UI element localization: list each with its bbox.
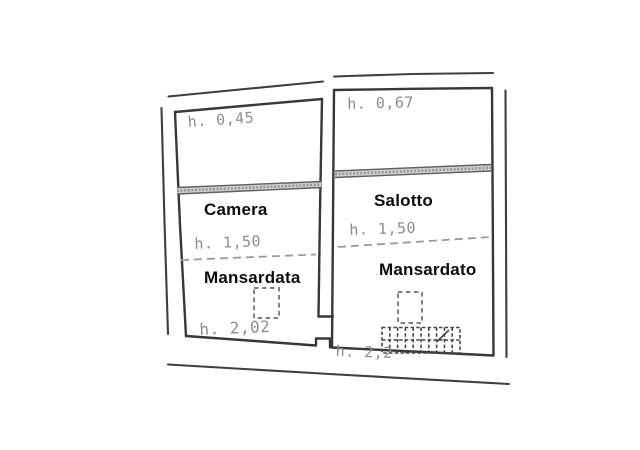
- attic-floor-plan: h. 0,45 Camera h. 1,50 Mansardata h. 2,0…: [0, 0, 640, 450]
- salotto-chimney-square: [398, 292, 422, 323]
- eaves-line-left: [162, 108, 169, 334]
- camera-chimney-square: [254, 288, 279, 318]
- salotto-height-top-label: h. 0,67: [347, 93, 414, 113]
- eaves-line-bottom: [168, 365, 509, 385]
- eaves-line-right: [506, 91, 507, 358]
- wall-left: [332, 90, 334, 348]
- wall-left: [175, 112, 186, 336]
- camera-height-mid-label: h. 1,50: [194, 232, 261, 253]
- wall-right: [492, 88, 494, 355]
- salotto-room-name: Salotto: [374, 191, 433, 211]
- chimney-squares: [254, 288, 422, 323]
- camera-zone-label: Mansardata: [204, 268, 300, 288]
- salotto-height-mid-label: h. 1,50: [349, 219, 416, 239]
- camera-height-divider: [177, 182, 322, 195]
- eaves-line-top-right: [334, 73, 493, 77]
- eaves-line-top-left: [169, 82, 324, 97]
- salotto-zone-label: Mansardato: [379, 260, 476, 280]
- floorplan-drawing: [0, 0, 640, 450]
- salotto-height-bottom-label: h. 2,2: [335, 342, 393, 362]
- camera-height-bottom-label: h. 2,02: [199, 317, 271, 339]
- camera-room-walls: [175, 99, 333, 348]
- camera-room-name: Camera: [204, 200, 268, 220]
- salotto-height-divider: [335, 165, 491, 178]
- staircase-symbol: [382, 328, 460, 354]
- camera-level-line: [181, 255, 316, 261]
- wall-right: [319, 99, 323, 317]
- wall-top: [334, 88, 492, 90]
